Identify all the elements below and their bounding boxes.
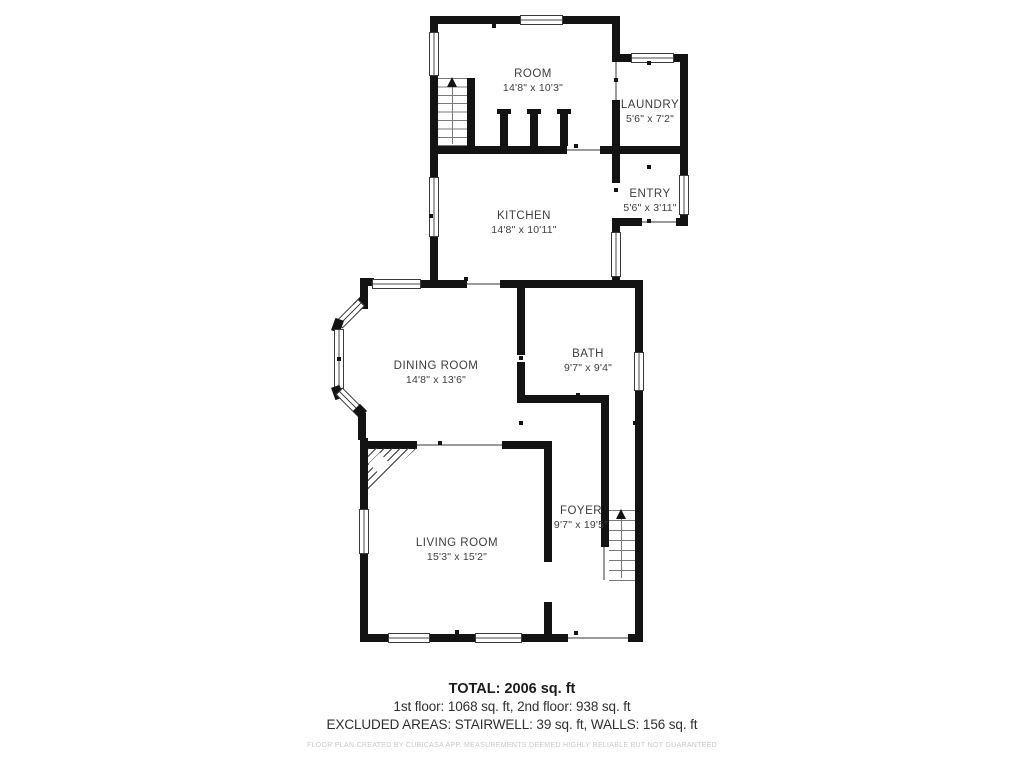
- closet-wall-cap: [497, 109, 511, 114]
- wall-tick: [337, 357, 341, 361]
- wall-tick: [546, 537, 550, 541]
- window: [359, 509, 369, 554]
- window: [429, 32, 439, 76]
- wall-tick: [614, 78, 618, 82]
- wall-segment: [612, 54, 631, 62]
- wall-tick: [633, 421, 637, 425]
- room-dims: 14'8" x 10'3": [503, 82, 563, 94]
- room-dims: 5'6" x 7'2": [621, 113, 679, 125]
- window: [429, 177, 439, 237]
- wall-segment: [544, 441, 552, 562]
- wall-segment: [676, 218, 688, 226]
- wall-tick: [429, 214, 433, 218]
- room-name: KITCHEN: [491, 210, 556, 222]
- room-label-foyer: FOYER 9'7" x 19'5": [554, 505, 608, 531]
- room-name: LIVING ROOM: [416, 537, 498, 549]
- wall-segment: [360, 441, 417, 449]
- wall-tick: [574, 144, 578, 148]
- wall-segment: [612, 100, 620, 183]
- wall-segment: [522, 634, 568, 642]
- room-dims: 9'7" x 19'5": [554, 519, 608, 531]
- room-label-dining: DINING ROOM 14'8" x 13'6": [394, 360, 479, 386]
- room-label-living: LIVING ROOM 15'3" x 15'2": [416, 537, 498, 563]
- window: [634, 352, 644, 391]
- room-label-entry: ENTRY 5'6" x 3'11": [623, 188, 676, 214]
- room-label-bath: BATH 9'7" x 9'4": [564, 348, 612, 374]
- room-label-laundry: LAUNDRY 5'6" x 7'2": [621, 99, 679, 125]
- room-dims: 15'3" x 15'2": [416, 551, 498, 563]
- closet-wall-cap: [527, 109, 541, 114]
- wall-segment: [680, 54, 688, 175]
- wall-tick: [576, 393, 580, 397]
- wall-tick: [464, 277, 468, 281]
- room-name: DINING ROOM: [394, 360, 479, 372]
- wall-segment: [467, 78, 475, 146]
- wall-segment: [360, 634, 388, 642]
- room-name: FOYER: [554, 505, 608, 517]
- opening-line: [467, 283, 500, 285]
- wall-segment: [430, 634, 475, 642]
- opening-line: [568, 637, 630, 639]
- wall-tick: [455, 630, 459, 634]
- room-dims: 14'8" x 10'11": [491, 224, 556, 236]
- window: [520, 15, 563, 25]
- wall-tick: [519, 421, 523, 425]
- window: [679, 175, 689, 215]
- window: [372, 279, 421, 289]
- window: [388, 633, 430, 643]
- room-name: LAUNDRY: [621, 99, 679, 111]
- room-dims: 5'6" x 3'11": [623, 202, 676, 214]
- wall-segment: [421, 280, 467, 288]
- wall-segment: [517, 395, 609, 403]
- disclaimer-text: FLOOR PLAN CREATED BY CUBICASA APP. MEAS…: [0, 742, 1024, 749]
- wall-segment: [430, 146, 567, 154]
- wall-tick: [647, 61, 651, 65]
- closet-wall-cap: [557, 109, 571, 114]
- room-name: ENTRY: [623, 188, 676, 200]
- wall-segment: [628, 634, 643, 642]
- wall-tick: [519, 356, 523, 360]
- stairs-up-arrow: [616, 509, 626, 519]
- room-name: BATH: [564, 348, 612, 360]
- staircase-foyer: [609, 510, 635, 581]
- room-dims: 14'8" x 13'6": [394, 374, 479, 386]
- wall-tick: [492, 24, 496, 28]
- wall-segment: [517, 280, 525, 355]
- window: [631, 53, 674, 63]
- room-dims: 9'7" x 9'4": [564, 362, 612, 374]
- closet-wall-stub: [500, 110, 508, 146]
- stairs-up-arrow: [447, 77, 457, 87]
- wall-tick: [647, 219, 651, 223]
- wall-tick: [614, 188, 618, 192]
- wall-segment: [600, 146, 688, 154]
- wall-tick: [438, 441, 442, 445]
- total-area-text: TOTAL: 2006 sq. ft: [0, 680, 1024, 698]
- wall-tick: [647, 165, 651, 169]
- room-label-kitchen: KITCHEN 14'8" x 10'11": [491, 210, 556, 236]
- summary: TOTAL: 2006 sq. ft 1st floor: 1068 sq. f…: [0, 680, 1024, 749]
- window: [475, 633, 522, 643]
- stairs-arrow-shaft: [621, 519, 622, 578]
- closet-wall-stub: [530, 110, 538, 146]
- wall-segment: [358, 413, 366, 440]
- room-name: ROOM: [503, 68, 563, 80]
- room-label-room: ROOM 14'8" x 10'3": [503, 68, 563, 94]
- closet-wall-stub: [560, 110, 568, 146]
- excluded-areas-text: EXCLUDED AREAS: STAIRWELL: 39 sq. ft, WA…: [0, 716, 1024, 734]
- opening-line: [603, 547, 605, 580]
- opening-line: [417, 444, 502, 446]
- window: [611, 232, 621, 277]
- wall-segment: [635, 280, 643, 642]
- opening-line: [567, 149, 600, 151]
- floor-plan-canvas: ROOM 14'8" x 10'3" LAUNDRY 5'6" x 7'2" K…: [0, 0, 1024, 768]
- stairs-arrow-shaft: [452, 87, 453, 144]
- wall-tick: [574, 631, 578, 635]
- floor-areas-text: 1st floor: 1068 sq. ft, 2nd floor: 938 s…: [0, 698, 1024, 716]
